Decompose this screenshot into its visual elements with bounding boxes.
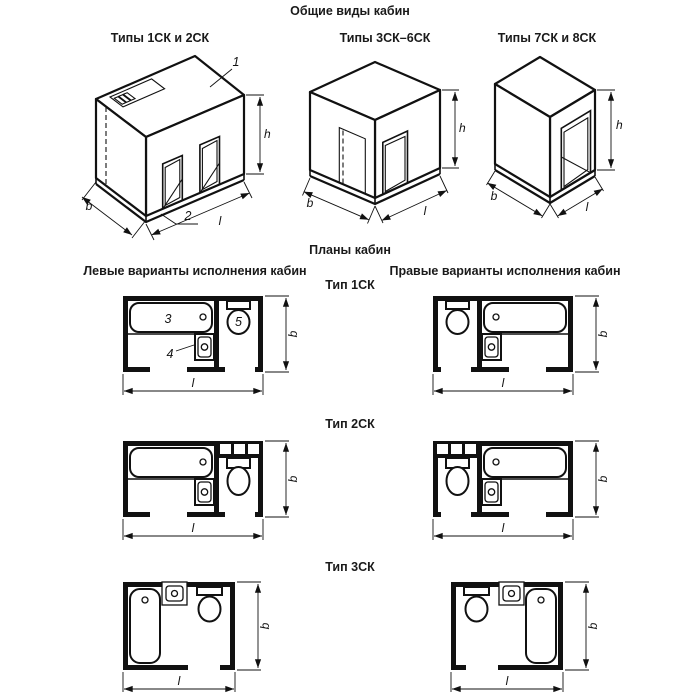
dimension-l: l <box>433 374 573 395</box>
dim-l-label: l <box>192 376 195 390</box>
dim-b-label: b <box>86 199 93 213</box>
dim-b-label: b <box>286 475 300 482</box>
dimension-h: h <box>442 90 466 168</box>
toilet <box>227 458 250 495</box>
iso-view-3sk-6sk: h b l <box>285 56 465 228</box>
plan-1sk-left: 3 4 5 b l <box>108 288 303 398</box>
plans-section-title: Планы кабин <box>275 243 425 257</box>
dim-b-label: b <box>491 189 498 203</box>
bathtub <box>130 589 160 663</box>
iso-view-1sk-2sk: 1 2 h b l <box>58 53 278 243</box>
callout-toilet-number: 5 <box>235 315 242 329</box>
dim-l-label: l <box>219 214 222 228</box>
dimension-b: b <box>575 296 610 372</box>
dim-h-label: h <box>616 118 623 132</box>
right-variants-header: Правые варианты исполнения кабин <box>370 264 640 278</box>
dim-l-label: l <box>192 521 195 535</box>
washbasin <box>195 334 214 360</box>
dim-b-label: b <box>286 330 300 337</box>
type-2sk-label: Тип 2СК <box>300 417 400 431</box>
dim-b-label: b <box>307 196 314 210</box>
drawing-sheet: Общие виды кабин Типы 1СК и 2СК Типы 3СК… <box>0 0 700 700</box>
dimension-b: b <box>265 441 300 517</box>
bathtub <box>128 448 212 479</box>
dim-l-label: l <box>586 200 589 214</box>
callout-roof-number: 1 <box>233 55 240 69</box>
iso-view-7sk-8sk: h b l <box>468 53 643 223</box>
dimension-b: b <box>265 296 300 372</box>
plan-3sk-left: b l <box>115 576 280 700</box>
bathtub <box>526 589 556 663</box>
washbasin <box>499 582 524 605</box>
dim-l-label: l <box>506 674 509 688</box>
vent-blocks <box>433 441 482 458</box>
dim-l-label: l <box>502 376 505 390</box>
toilet <box>446 301 469 334</box>
dim-h-label: h <box>264 127 271 141</box>
dimension-l: l <box>123 672 235 692</box>
plan-2sk-right: b l <box>418 433 613 543</box>
dim-b-label: b <box>258 622 272 629</box>
dimension-l: l <box>123 374 263 395</box>
dimension-b: b <box>575 441 610 517</box>
type-1sk-label: Тип 1СК <box>300 278 400 292</box>
iso-label-1sk-2sk: Типы 1СК и 2СК <box>80 31 240 45</box>
plan-3sk-right: b l <box>443 576 608 700</box>
vent-blocks <box>214 441 263 458</box>
left-variants-header: Левые варианты исполнения кабин <box>60 264 330 278</box>
type-3sk-label: Тип 3СК <box>300 560 400 574</box>
dim-l-label: l <box>424 204 427 218</box>
callout-washbasin: 4 <box>167 345 194 361</box>
washbasin <box>482 479 501 505</box>
dim-b-label: b <box>596 475 610 482</box>
toilet <box>464 587 489 622</box>
cabin-body <box>495 57 595 203</box>
dim-l-label: l <box>502 521 505 535</box>
dimension-b: b <box>237 582 272 670</box>
toilet <box>446 458 469 495</box>
bathtub <box>484 303 568 334</box>
iso-label-7sk-8sk: Типы 7СК и 8СК <box>467 31 627 45</box>
toilet <box>197 587 222 622</box>
dim-b-label: b <box>596 330 610 337</box>
dimension-h: h <box>246 95 271 174</box>
dim-b-label: b <box>586 622 600 629</box>
cabin-body <box>310 62 440 204</box>
washbasin <box>195 479 214 505</box>
dimension-b: b <box>565 582 600 670</box>
callout-washbasin-number: 4 <box>167 347 174 361</box>
dimension-l: l <box>123 519 263 540</box>
callout-base: 2 <box>161 209 198 224</box>
washbasin <box>482 334 501 360</box>
dim-h-label: h <box>459 121 466 135</box>
bathtub <box>484 448 568 479</box>
plan-2sk-left: b l <box>108 433 303 543</box>
dimension-l: l <box>433 519 573 540</box>
dimension-l: l <box>451 672 563 692</box>
plan-1sk-right: b l <box>418 288 613 398</box>
dimension-h: h <box>597 90 623 170</box>
callout-bathtub-number: 3 <box>165 312 172 326</box>
dim-l-label: l <box>178 674 181 688</box>
page-title: Общие виды кабин <box>0 4 700 18</box>
iso-label-3sk-6sk: Типы 3СК–6СК <box>305 31 465 45</box>
washbasin <box>162 582 187 605</box>
